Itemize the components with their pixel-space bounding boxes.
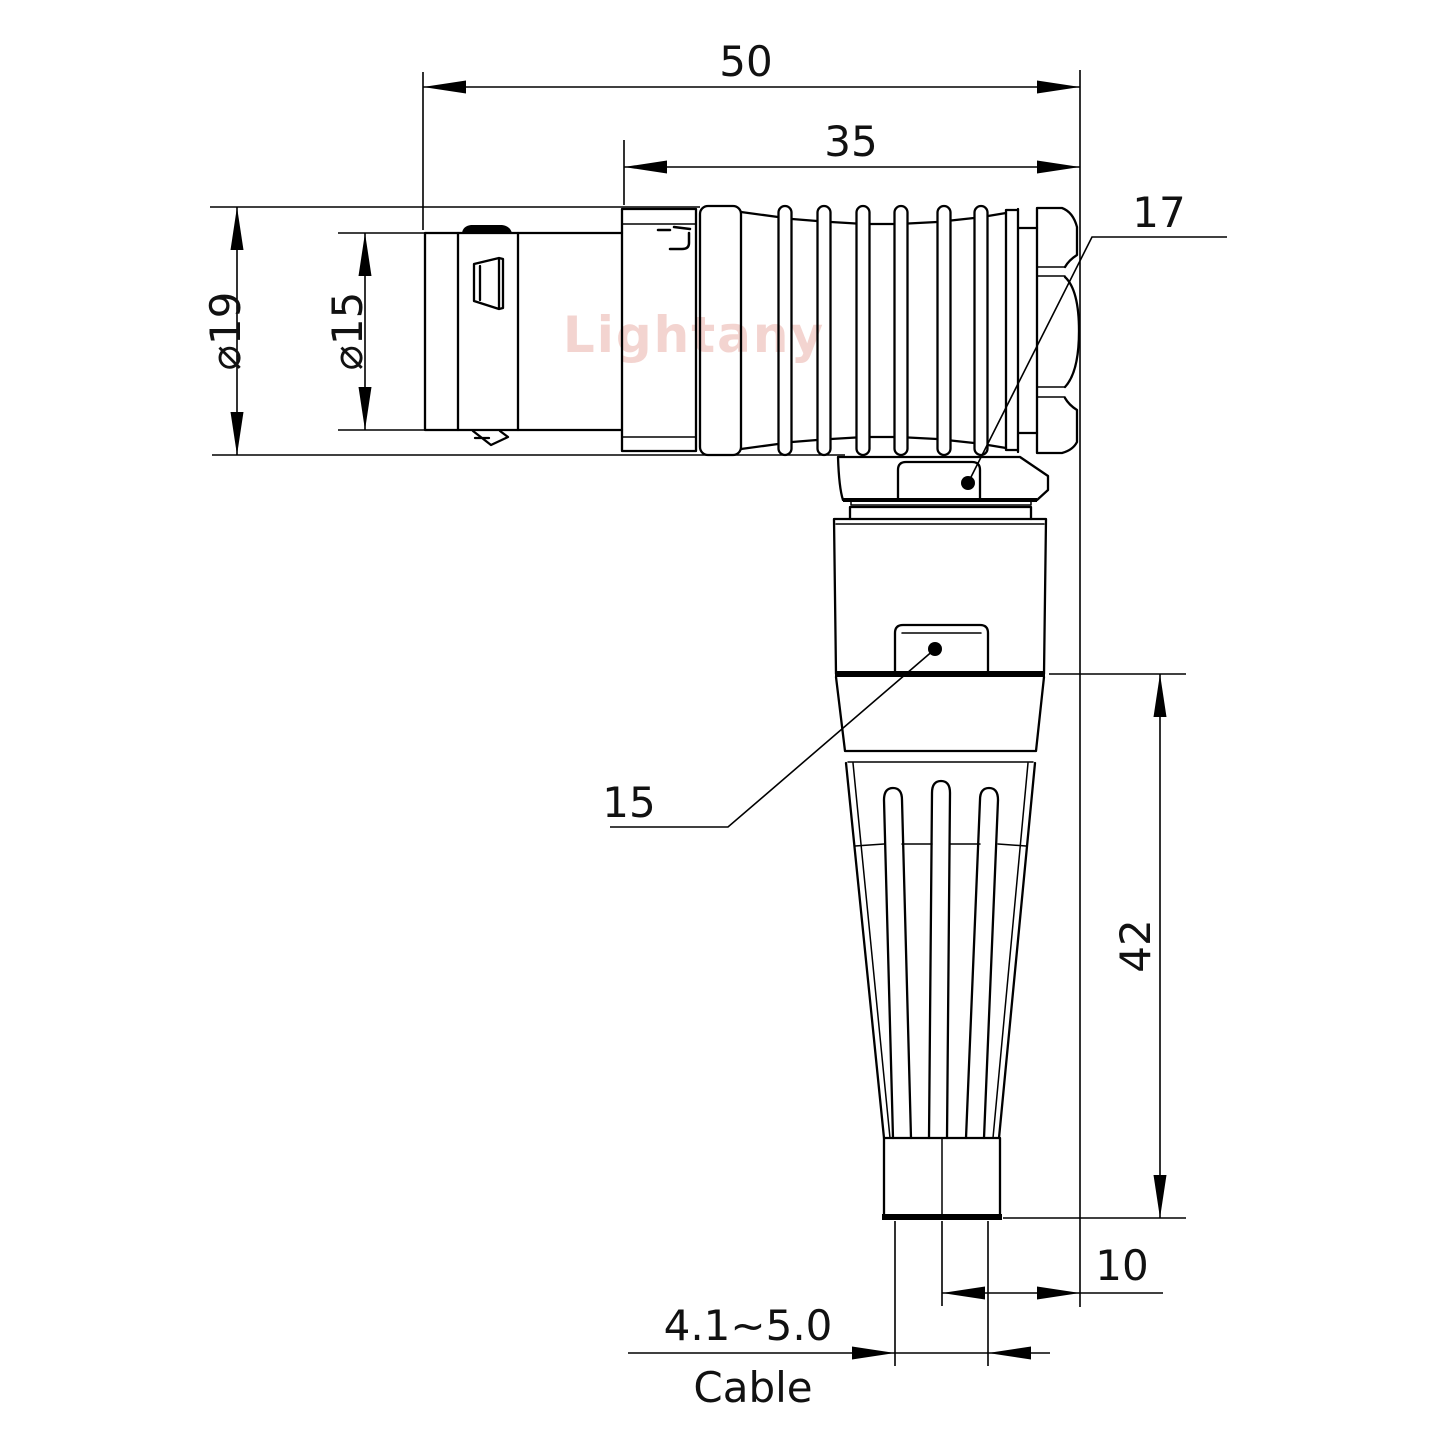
hex-collar [1006,209,1037,452]
cone-outer-edges [846,763,1035,1138]
dim10-arrow-right [1037,1287,1080,1300]
cone-webs [855,844,1026,846]
hex-profile [1037,208,1079,453]
dimension-front-diameter: ⌀15 [323,233,425,430]
dim10-arrow-left [942,1287,985,1300]
engraving-mark [658,227,690,249]
dimension-axis-offset: 10 [942,1221,1163,1306]
dimension-cable-diameter: 4.1~5.0 Cable [628,1221,1050,1412]
dimension-leg-length: 42 [1003,674,1186,1218]
leg-lower-drum [836,677,1044,751]
cone-fin-3 [966,788,998,1138]
dia19-arrow-top [231,207,244,250]
ref17-label: 17 [1132,188,1185,237]
cone-fin-1 [884,788,911,1138]
grip-saddle-bottom [741,437,1006,449]
strain-relief-cone [846,763,1035,1138]
hex-nut [1006,208,1079,453]
vertical-leg [834,519,1046,762]
dia15-label: ⌀15 [323,292,372,371]
connector-engineering-drawing: Lightany [0,0,1440,1440]
cable-arrow-left [852,1347,895,1360]
cable-word-label: Cable [693,1363,812,1412]
grip-saddle-top [741,212,1006,224]
dimension-rear-length: 35 [624,117,1080,205]
leg-groove-band [835,671,1045,677]
dim50-lines [423,70,1080,1307]
ferrule-bottom-edge [882,1214,1002,1220]
dim35-arrow-right [1037,161,1080,174]
ref15-label: 15 [602,778,655,827]
latch-flap [473,431,508,445]
dim42-arrow-top [1154,674,1167,717]
latch-cap [462,225,512,233]
dim50-arrow-left [423,81,466,94]
watermark-text: Lightany [563,306,825,364]
dim50-arrow-right [1037,81,1080,94]
elbow-outline [838,457,1048,500]
dim42-arrow-bottom [1154,1175,1167,1218]
dim35-arrow-left [624,161,667,174]
cone-fin-2 [929,781,950,1138]
cable-ferrule [882,1138,1002,1220]
latch-sleeve [458,233,518,430]
cable-range-label: 4.1~5.0 [664,1301,833,1350]
dia15-arrow-top [359,233,372,276]
technical-drawing-page: Lightany [0,0,1440,1440]
dim42-label: 42 [1111,919,1160,972]
elbow-housing [838,457,1048,519]
dim10-label: 10 [1095,1241,1148,1290]
dia19-arrow-bottom [231,412,244,455]
dia15-arrow-bottom [359,387,372,430]
dia19-label: ⌀19 [201,292,250,371]
elbow-collar [850,507,1031,519]
latch-window [474,258,503,309]
cable-arrow-right [988,1347,1031,1360]
hex-facet-lines [1038,267,1065,397]
dim50-label: 50 [719,37,772,86]
dim35-label: 35 [824,117,877,166]
